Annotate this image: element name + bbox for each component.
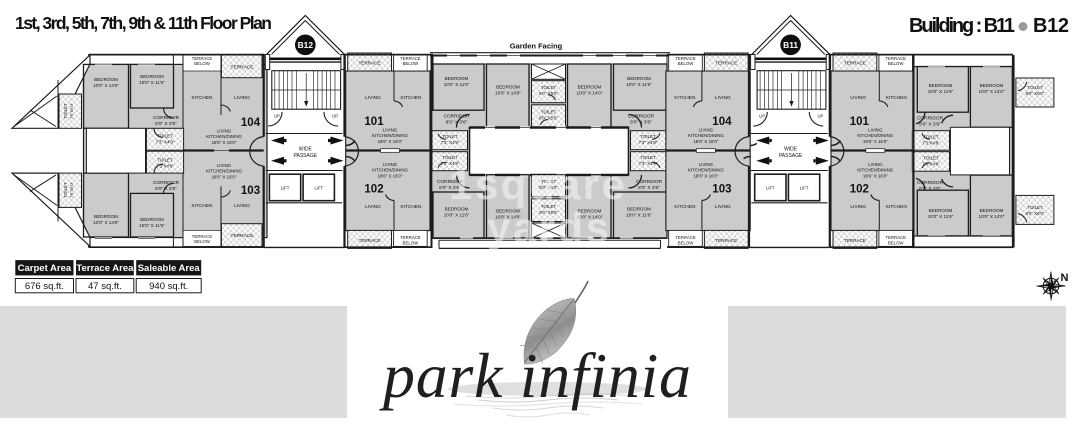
svg-text:LIVING: LIVING — [217, 163, 232, 168]
svg-text:LIVING: LIVING — [383, 128, 398, 133]
svg-text:KITCHEN/DINING: KITCHEN/DINING — [206, 169, 242, 174]
svg-text:TOILET: TOILET — [640, 134, 656, 139]
svg-text:18'6" X 16'0": 18'6" X 16'0" — [212, 140, 237, 145]
svg-text:TERRACE: TERRACE — [400, 235, 421, 240]
svg-text:7'3" X4'9": 7'3" X4'9" — [441, 140, 460, 145]
svg-text:7'3" X4'9": 7'3" X4'9" — [156, 140, 175, 145]
svg-text:BEDROOM: BEDROOM — [929, 208, 953, 213]
svg-text:8'0" X5'0": 8'0" X5'0" — [539, 116, 558, 121]
svg-text:LIVING: LIVING — [699, 162, 714, 167]
svg-text:WIDE: WIDE — [299, 147, 313, 153]
svg-text:TOILET: TOILET — [157, 158, 173, 163]
svg-text:BEDROOM: BEDROOM — [140, 217, 164, 222]
svg-text:LIFT: LIFT — [766, 186, 775, 191]
svg-text:101: 101 — [364, 116, 384, 128]
svg-text:KITCHEN/DINING: KITCHEN/DINING — [688, 168, 724, 173]
svg-text:18'6" X 16'0": 18'6" X 16'0" — [693, 139, 718, 144]
svg-text:676 sq.ft.: 676 sq.ft. — [25, 281, 64, 292]
svg-text:KITCHEN: KITCHEN — [674, 204, 696, 210]
svg-text:18'6" X 16'0": 18'6" X 16'0" — [378, 139, 403, 144]
svg-text:TOILET: TOILET — [63, 182, 68, 198]
svg-text:BEDROOM: BEDROOM — [496, 85, 520, 90]
svg-text:940 sq.ft.: 940 sq.ft. — [149, 281, 188, 292]
svg-text:B11: B11 — [783, 40, 798, 50]
svg-text:LIVING: LIVING — [365, 95, 381, 101]
svg-text:TOILET: TOILET — [1027, 205, 1043, 210]
svg-text:PASSAGE: PASSAGE — [779, 153, 803, 159]
svg-text:UP: UP — [817, 114, 823, 119]
svg-text:47 sq.ft.: 47 sq.ft. — [88, 281, 122, 292]
svg-text:8'0" X5'0": 8'0" X5'0" — [1026, 91, 1045, 96]
svg-text:BEDROOM: BEDROOM — [627, 207, 651, 212]
svg-text:TOILET: TOILET — [541, 85, 557, 90]
svg-text:TOILET: TOILET — [1027, 85, 1043, 90]
svg-text:10'0" X 14'0": 10'0" X 14'0" — [93, 220, 119, 225]
svg-text:LIVING: LIVING — [868, 128, 883, 133]
svg-text:104: 104 — [712, 116, 732, 128]
svg-text:TERRACE: TERRACE — [885, 235, 906, 240]
svg-text:CORRIDOR: CORRIDOR — [153, 180, 180, 186]
svg-text:KITCHEN: KITCHEN — [886, 95, 908, 101]
svg-text:TOILET: TOILET — [442, 134, 458, 139]
svg-text:LIVING: LIVING — [850, 204, 866, 210]
svg-text:10'0" X 11'6": 10'0" X 11'6" — [139, 223, 165, 228]
svg-text:LIVING: LIVING — [234, 95, 250, 101]
svg-text:LIVING: LIVING — [715, 95, 731, 101]
svg-text:101: 101 — [850, 116, 870, 128]
svg-text:TOILET: TOILET — [442, 155, 458, 160]
svg-text:KITCHEN/DINING: KITCHEN/DINING — [857, 133, 893, 138]
svg-text:BEDROOM: BEDROOM — [94, 77, 118, 82]
svg-text:102: 102 — [364, 184, 383, 196]
svg-text:10'0" X 11'6": 10'0" X 11'6" — [626, 82, 652, 87]
svg-text:7'6"X6'0": 7'6"X6'0" — [69, 102, 74, 119]
svg-text:BELOW: BELOW — [403, 61, 419, 66]
svg-text:TERRACE: TERRACE — [359, 238, 381, 243]
svg-text:BELOW: BELOW — [888, 241, 904, 246]
svg-text:TERRACE: TERRACE — [231, 233, 254, 239]
svg-text:18'6" X 16'0": 18'6" X 16'0" — [212, 174, 237, 179]
svg-text:8'0" X 3'6": 8'0" X 3'6" — [919, 186, 941, 192]
svg-text:BELOW: BELOW — [888, 61, 904, 66]
svg-text:LIVING: LIVING — [234, 203, 250, 209]
svg-text:UP: UP — [332, 114, 338, 119]
svg-text:park infinia: park infinia — [379, 340, 691, 411]
svg-text:10'0" X 14'0": 10'0" X 14'0" — [979, 89, 1005, 94]
svg-text:TERRACE: TERRACE — [844, 61, 866, 66]
svg-text:LIFT: LIFT — [314, 186, 323, 191]
svg-text:KITCHEN/DINING: KITCHEN/DINING — [372, 133, 408, 138]
svg-text:8'0" X 3'6": 8'0" X 3'6" — [919, 122, 941, 128]
svg-text:TOILET: TOILET — [640, 155, 656, 160]
svg-text:103: 103 — [712, 184, 731, 196]
svg-text:B12: B12 — [1033, 15, 1069, 37]
svg-text:KITCHEN: KITCHEN — [674, 95, 696, 101]
svg-text:BEDROOM: BEDROOM — [929, 83, 953, 88]
svg-text:BELOW: BELOW — [403, 241, 419, 246]
svg-text:UP: UP — [274, 114, 280, 119]
svg-text:18'6" X 16'0": 18'6" X 16'0" — [693, 173, 718, 178]
svg-text:yards: yards — [487, 204, 609, 251]
svg-text:KITCHEN: KITCHEN — [191, 95, 213, 101]
svg-text:10'0" X 14'0": 10'0" X 14'0" — [495, 91, 521, 96]
svg-text:TOILET: TOILET — [541, 110, 557, 115]
svg-text:102: 102 — [850, 184, 869, 196]
svg-text:LIVING: LIVING — [383, 162, 398, 167]
svg-text:BELOW: BELOW — [678, 241, 694, 246]
svg-text:7'3"X4'9": 7'3"X4'9" — [156, 164, 174, 169]
svg-text:UP: UP — [759, 114, 765, 119]
svg-text:TOILET: TOILET — [157, 134, 173, 139]
svg-text:Terrace Area: Terrace Area — [76, 263, 134, 274]
svg-text:BELOW: BELOW — [678, 61, 694, 66]
svg-text:KITCHEN/DINING: KITCHEN/DINING — [688, 133, 724, 138]
svg-text:Saleable Area: Saleable Area — [138, 263, 201, 274]
svg-text:KITCHEN/DINING: KITCHEN/DINING — [857, 168, 893, 173]
svg-text:10'0" X 11'6": 10'0" X 11'6" — [139, 80, 165, 85]
svg-text:TERRACE: TERRACE — [715, 238, 737, 243]
svg-text:Carpet Area: Carpet Area — [18, 263, 72, 274]
svg-text:103: 103 — [241, 185, 260, 197]
svg-text:10'0" X 11'6": 10'0" X 11'6" — [928, 214, 954, 219]
svg-text:BEDROOM: BEDROOM — [94, 214, 118, 219]
svg-text:8'0" X 3'6": 8'0" X 3'6" — [155, 121, 177, 127]
svg-text:LIVING: LIVING — [850, 95, 866, 101]
svg-text:10'0" X 14'0": 10'0" X 14'0" — [979, 214, 1005, 219]
svg-text:TERRACE: TERRACE — [715, 61, 737, 66]
svg-text:WIDE: WIDE — [784, 147, 798, 153]
svg-text:7'3"X4'9": 7'3"X4'9" — [922, 141, 940, 146]
svg-text:10'0" X 11'6": 10'0" X 11'6" — [444, 213, 470, 218]
svg-text:PASSAGE: PASSAGE — [294, 153, 318, 159]
svg-text:104: 104 — [241, 117, 261, 129]
svg-text:BELOW: BELOW — [194, 61, 210, 66]
svg-text:8'0" X5'0": 8'0" X5'0" — [539, 91, 558, 96]
svg-text:LIVING: LIVING — [715, 204, 731, 210]
svg-text:1st, 3rd, 5th, 7th, 9th & 11th: 1st, 3rd, 5th, 7th, 9th & 11th Floor Pla… — [15, 13, 272, 33]
svg-text:10'0" X 11'6": 10'0" X 11'6" — [928, 89, 954, 94]
svg-text:10'0" X 14'0": 10'0" X 14'0" — [577, 91, 603, 96]
svg-text:TERRACE: TERRACE — [231, 65, 254, 71]
svg-text:8'0" X 3'6": 8'0" X 3'6" — [638, 185, 660, 191]
svg-text:BEDROOM: BEDROOM — [140, 74, 164, 79]
svg-text:10'0" X 11'6": 10'0" X 11'6" — [444, 82, 470, 87]
svg-text:18'6" X 16'0": 18'6" X 16'0" — [863, 173, 888, 178]
svg-text:KITCHEN/DINING: KITCHEN/DINING — [372, 168, 408, 173]
svg-text:1square: 1square — [449, 161, 625, 208]
svg-text:BEDROOM: BEDROOM — [980, 208, 1004, 213]
svg-text:BEDROOM: BEDROOM — [627, 76, 651, 81]
svg-text:BEDROOM: BEDROOM — [980, 83, 1004, 88]
svg-text:KITCHEN: KITCHEN — [886, 204, 908, 210]
svg-text:TERRACE: TERRACE — [675, 235, 696, 240]
svg-text:KITCHEN/DINING: KITCHEN/DINING — [206, 134, 242, 139]
svg-text:TOILET: TOILET — [923, 156, 939, 161]
svg-text:LIVING: LIVING — [365, 204, 381, 210]
svg-text:7'3" X4'9": 7'3" X4'9" — [639, 161, 658, 166]
svg-text:TOILET: TOILET — [63, 103, 68, 119]
svg-text:KITCHEN: KITCHEN — [400, 95, 422, 101]
svg-text:BEDROOM: BEDROOM — [445, 76, 469, 81]
svg-text:Garden Facing: Garden Facing — [510, 42, 563, 51]
svg-text:BEDROOM: BEDROOM — [578, 85, 602, 90]
svg-text:TERRACE: TERRACE — [844, 238, 866, 243]
svg-text:KITCHEN: KITCHEN — [191, 203, 213, 209]
svg-text:10'0" X 14'0": 10'0" X 14'0" — [93, 83, 119, 88]
svg-text:18'6" X 16'0": 18'6" X 16'0" — [378, 173, 403, 178]
svg-text:LIVING: LIVING — [699, 128, 714, 133]
svg-text:LIFT: LIFT — [800, 186, 809, 191]
svg-text:LIVING: LIVING — [217, 129, 232, 134]
svg-text:Building : B11: Building : B11 — [909, 15, 1015, 37]
svg-text:LIVING: LIVING — [868, 162, 883, 167]
svg-text:CORRIDOR: CORRIDOR — [153, 115, 180, 121]
svg-text:10'0" X 11'6": 10'0" X 11'6" — [626, 213, 652, 218]
svg-text:18'6" X 16'0": 18'6" X 16'0" — [863, 139, 888, 144]
svg-text:TERRACE: TERRACE — [359, 61, 381, 66]
svg-text:BELOW: BELOW — [194, 239, 210, 244]
svg-text:KITCHEN: KITCHEN — [400, 204, 422, 210]
svg-text:7'3" X4'9": 7'3" X4'9" — [639, 140, 658, 145]
svg-text:7'6"X6'0": 7'6"X6'0" — [69, 181, 74, 198]
svg-text:B12: B12 — [298, 40, 314, 50]
svg-text:8'0" X5'0": 8'0" X5'0" — [1026, 211, 1045, 216]
svg-text:LIFT: LIFT — [281, 186, 290, 191]
svg-text:N: N — [1061, 272, 1069, 284]
